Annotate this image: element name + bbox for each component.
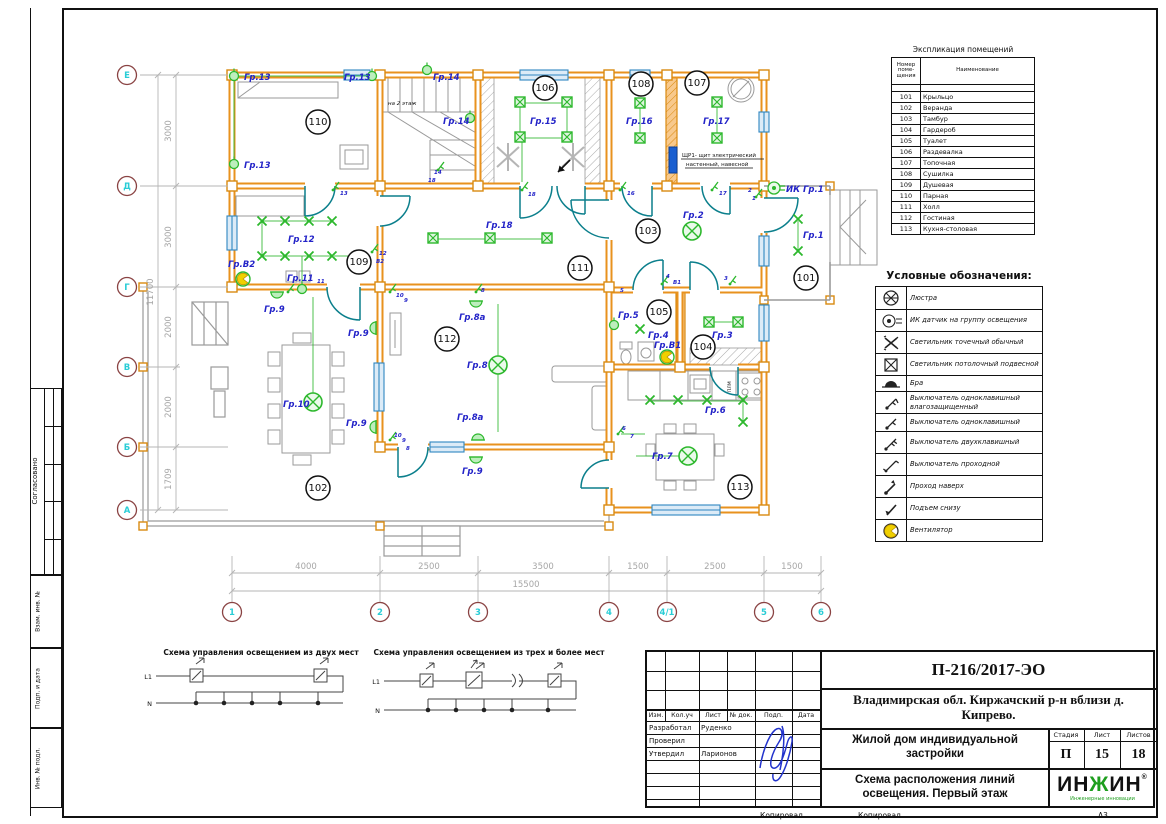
- svg-text:Г: Г: [124, 283, 130, 293]
- svg-text:11: 11: [317, 279, 325, 285]
- svg-text:13: 13: [340, 191, 348, 197]
- svg-text:Гр.9: Гр.9: [346, 419, 367, 429]
- svg-text:106: 106: [535, 83, 554, 94]
- svg-text:110: 110: [308, 117, 327, 128]
- svg-text:8: 8: [481, 288, 485, 294]
- switch-icon: [711, 182, 718, 191]
- svg-text:7: 7: [630, 434, 634, 440]
- svg-text:103: 103: [638, 226, 657, 237]
- svg-text:5: 5: [620, 288, 624, 294]
- svg-text:3000: 3000: [164, 226, 174, 248]
- svg-text:9: 9: [402, 438, 406, 444]
- pendant-light-icon: [515, 97, 525, 107]
- svg-text:1500: 1500: [627, 562, 649, 572]
- svg-text:101: 101: [796, 273, 815, 284]
- panel-label: ЩР1- щит электрический: [682, 152, 756, 159]
- chandelier-icon: [679, 447, 697, 465]
- svg-text:Гр.13: Гр.13: [344, 73, 371, 83]
- svg-text:5: 5: [761, 608, 767, 618]
- svg-text:15500: 15500: [512, 580, 539, 590]
- pendant-light-icon: [712, 133, 722, 143]
- pendant-light-icon: [704, 317, 714, 327]
- control-scheme-three-places: Схема управления освещением из трех и бо…: [372, 648, 605, 715]
- svg-text:6: 6: [622, 426, 626, 432]
- svg-text:Гр.11: Гр.11: [287, 274, 314, 284]
- ir-sensor-icon: [768, 182, 785, 194]
- svg-text:18: 18: [428, 178, 436, 184]
- svg-text:Гр.14: Гр.14: [443, 117, 470, 127]
- svg-text:В: В: [124, 363, 130, 373]
- svg-text:L1: L1: [144, 673, 152, 681]
- svg-text:108: 108: [631, 79, 650, 90]
- svg-text:3000: 3000: [164, 120, 174, 142]
- svg-text:112: 112: [437, 334, 456, 345]
- sconce-icon: [370, 420, 376, 434]
- svg-text:Д: Д: [123, 182, 131, 192]
- svg-text:Гр.4: Гр.4: [648, 331, 669, 341]
- svg-text:2500: 2500: [418, 562, 440, 572]
- svg-text:4: 4: [606, 608, 612, 618]
- pendant-light-icon: [635, 133, 645, 143]
- svg-text:Гр.9: Гр.9: [348, 329, 369, 339]
- chandelier-icon: [683, 222, 701, 240]
- svg-text:2500: 2500: [704, 562, 726, 572]
- pendant-light-icon: [428, 233, 438, 243]
- electrical-panel: ЩР1- щит электрический настенный, навесн…: [669, 147, 764, 173]
- svg-text:N: N: [375, 707, 380, 715]
- svg-text:Гр.7: Гр.7: [652, 452, 673, 462]
- svg-text:А: А: [124, 506, 131, 516]
- chandelier-icon: [489, 356, 507, 374]
- svg-text:3: 3: [475, 608, 481, 618]
- svg-text:Гр.6: Гр.6: [705, 406, 726, 416]
- svg-text:Гр.8а: Гр.8а: [457, 413, 484, 423]
- signature: [760, 726, 792, 781]
- svg-text:Гр.5: Гр.5: [618, 311, 639, 321]
- svg-text:17: 17: [719, 191, 727, 197]
- svg-text:104: 104: [693, 342, 712, 353]
- pendant-light-icon: [562, 132, 572, 142]
- svg-text:Гр.1: Гр.1: [803, 231, 824, 241]
- svg-text:12: 12: [379, 251, 387, 257]
- svg-text:Гр.8а: Гр.8а: [459, 313, 486, 323]
- sconce-icon: [471, 434, 485, 440]
- svg-text:Гр.2: Гр.2: [683, 211, 704, 221]
- svg-text:3: 3: [724, 276, 728, 282]
- pendant-light-icon: [485, 233, 495, 243]
- svg-text:10: 10: [396, 293, 404, 299]
- svg-text:10: 10: [394, 433, 402, 439]
- svg-text:Гр.13: Гр.13: [244, 161, 271, 171]
- svg-text:1500: 1500: [781, 562, 803, 572]
- svg-text:1709: 1709: [164, 468, 174, 490]
- spot-light-icon: [636, 325, 645, 334]
- svg-text:Гр.18: Гр.18: [486, 221, 513, 231]
- svg-text:6: 6: [818, 608, 824, 618]
- svg-text:107: 107: [687, 78, 706, 89]
- svg-text:Гр.9: Гр.9: [264, 305, 285, 315]
- svg-text:3500: 3500: [532, 562, 554, 572]
- svg-text:Б: Б: [124, 443, 130, 453]
- svg-text:9: 9: [404, 298, 408, 304]
- sconce-icon: [423, 63, 432, 75]
- svg-text:В2: В2: [376, 259, 384, 265]
- svg-text:8: 8: [406, 446, 410, 452]
- svg-text:14: 14: [434, 170, 442, 176]
- svg-text:113: 113: [730, 482, 749, 493]
- svg-text:Схема управления освещением из: Схема управления освещением из трех и бо…: [373, 648, 605, 657]
- svg-text:Гр.В2: Гр.В2: [228, 260, 255, 270]
- svg-text:18: 18: [528, 192, 536, 198]
- svg-text:109: 109: [349, 257, 368, 268]
- switch-icon: [521, 182, 528, 191]
- svg-text:11700: 11700: [146, 278, 156, 305]
- pendant-light-icon: [542, 233, 552, 243]
- svg-text:111: 111: [570, 263, 589, 274]
- svg-text:В1: В1: [673, 280, 681, 286]
- svg-text:Гр.3: Гр.3: [712, 331, 733, 341]
- fan-icon: [236, 272, 250, 286]
- pendant-light-icon: [562, 97, 572, 107]
- svg-text:Гр.13: Гр.13: [244, 73, 271, 83]
- stove-label: ПЛМ: [727, 381, 733, 392]
- drawing-sheet: Согласовано Взам. инв. № Подп. и дата Ин…: [0, 0, 1166, 824]
- fan-icon: [660, 350, 674, 364]
- svg-text:L1: L1: [372, 678, 380, 686]
- control-scheme-two-places: Схема управления освещением из двух мест…: [144, 648, 359, 708]
- sconce-icon: [469, 457, 483, 463]
- sconce-icon: [270, 292, 284, 298]
- svg-text:102: 102: [308, 483, 327, 494]
- svg-text:2000: 2000: [164, 396, 174, 418]
- pendant-light-icon: [733, 317, 743, 327]
- sconce-icon: [469, 301, 483, 307]
- svg-text:4/1: 4/1: [660, 608, 675, 618]
- svg-text:Е: Е: [124, 71, 130, 81]
- svg-text:Гр.15: Гр.15: [530, 117, 557, 127]
- sconce-icon: [370, 321, 376, 335]
- svg-text:Гр.8: Гр.8: [467, 361, 488, 371]
- svg-text:1: 1: [229, 608, 235, 618]
- svg-text:N: N: [147, 700, 152, 708]
- svg-text:Гр.14: Гр.14: [433, 73, 460, 83]
- switch-icon: [729, 276, 736, 285]
- pendant-light-icon: [515, 132, 525, 142]
- svg-text:1: 1: [752, 196, 756, 202]
- svg-text:Гр.В1: Гр.В1: [654, 341, 681, 351]
- svg-text:2: 2: [748, 188, 752, 194]
- svg-text:Гр.12: Гр.12: [288, 235, 315, 245]
- svg-text:4000: 4000: [295, 562, 317, 572]
- svg-text:Схема управления освещением из: Схема управления освещением из двух мест: [163, 648, 359, 657]
- svg-text:2000: 2000: [164, 316, 174, 338]
- svg-text:Гр.9: Гр.9: [462, 467, 483, 477]
- svg-text:ИК Гр.1: ИК Гр.1: [786, 185, 824, 195]
- svg-text:Гр.10: Гр.10: [283, 400, 310, 410]
- svg-text:Гр.16: Гр.16: [626, 117, 653, 127]
- svg-text:16: 16: [627, 191, 635, 197]
- pendant-light-icon: [635, 98, 645, 108]
- stairs-up-label: на 2 этаж: [388, 101, 417, 107]
- svg-text:105: 105: [649, 307, 668, 318]
- svg-text:2: 2: [377, 608, 383, 618]
- floor-plan-canvas: ПЛМ: [0, 0, 1166, 824]
- pendant-light-icon: [712, 97, 722, 107]
- svg-text:4: 4: [666, 274, 670, 280]
- svg-text:Гр.17: Гр.17: [703, 117, 730, 127]
- panel-label: настенный, навесной: [686, 161, 749, 168]
